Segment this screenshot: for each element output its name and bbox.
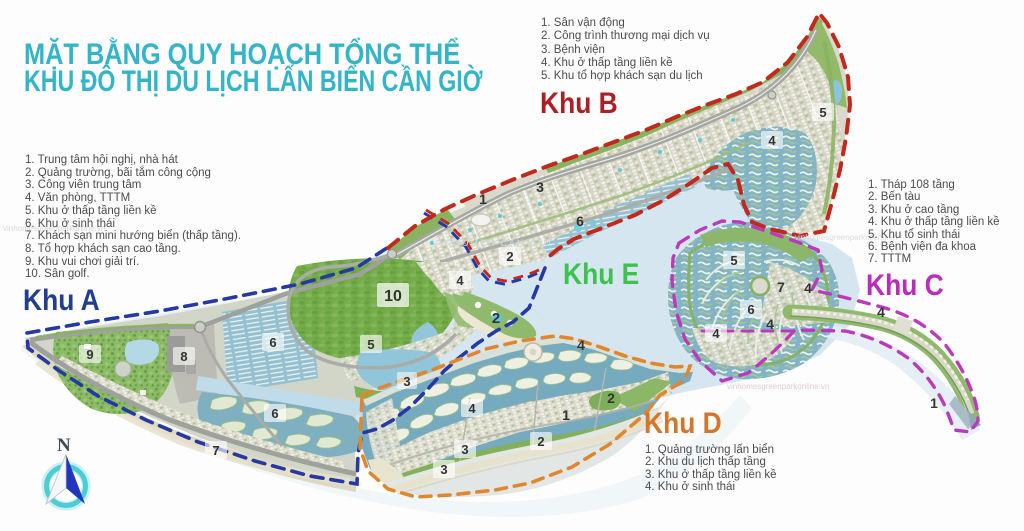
svg-text:6: 6 [747,302,754,317]
svg-text:2: 2 [492,310,500,327]
svg-text:3: 3 [536,179,544,195]
svg-text:6: 6 [269,335,276,350]
svg-text:2: 2 [607,390,615,406]
svg-text:6: 6 [576,213,584,229]
svg-text:1: 1 [930,395,938,411]
svg-text:7: 7 [777,279,785,295]
svg-text:5: 5 [730,253,737,268]
svg-text:4: 4 [456,273,464,288]
svg-text:4: 4 [712,326,720,341]
svg-text:7: 7 [212,443,219,458]
svg-text:4: 4 [468,401,476,416]
svg-text:6: 6 [271,406,278,421]
svg-text:4: 4 [766,316,774,332]
svg-text:2: 2 [506,249,513,264]
svg-text:5: 5 [367,337,374,352]
svg-text:1: 1 [562,407,570,423]
svg-text:5: 5 [819,105,826,120]
svg-text:10: 10 [384,288,402,305]
svg-text:4: 4 [577,337,585,353]
svg-text:4: 4 [877,304,885,320]
svg-text:4: 4 [768,133,776,148]
svg-text:3: 3 [403,374,410,389]
svg-text:1: 1 [479,191,487,207]
svg-text:3: 3 [440,462,447,477]
svg-text:4: 4 [804,280,812,296]
svg-text:8: 8 [180,349,187,364]
svg-text:9: 9 [86,347,93,362]
svg-text:3: 3 [461,442,468,457]
svg-text:2: 2 [537,434,544,449]
